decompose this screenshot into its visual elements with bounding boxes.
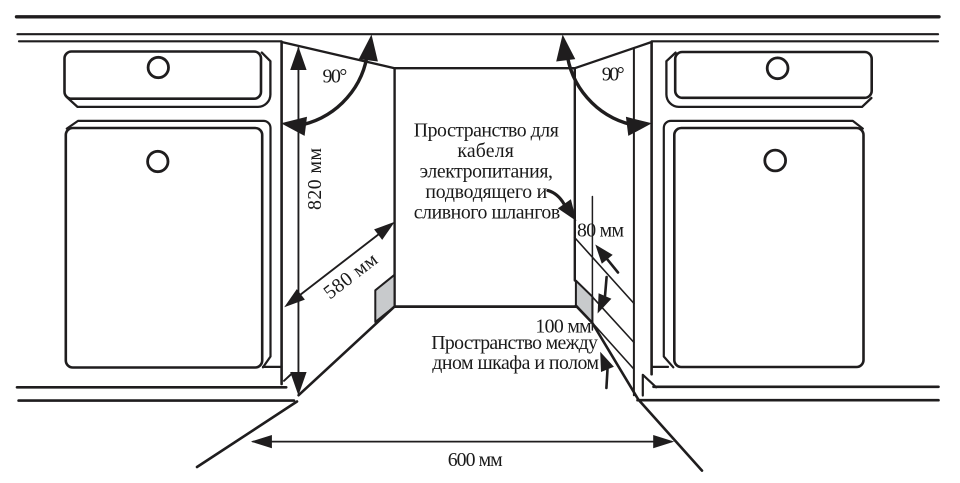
svg-text:820 мм: 820 мм	[304, 148, 326, 210]
svg-text:600 мм: 600 мм	[448, 449, 503, 471]
svg-text:дном шкафа и полом: дном шкафа и полом	[432, 352, 599, 374]
svg-text:сливного шлангов: сливного шлангов	[414, 201, 560, 223]
svg-text:80 мм: 80 мм	[577, 219, 624, 241]
svg-text:Пространство для: Пространство для	[414, 120, 559, 142]
svg-text:кабеля: кабеля	[457, 140, 513, 162]
svg-text:90°: 90°	[323, 65, 348, 87]
svg-text:электропитания,: электропитания,	[420, 161, 553, 183]
svg-text:90°: 90°	[602, 64, 625, 86]
svg-text:Пространство между: Пространство между	[431, 332, 598, 354]
svg-text:подводящего и: подводящего и	[425, 181, 547, 203]
